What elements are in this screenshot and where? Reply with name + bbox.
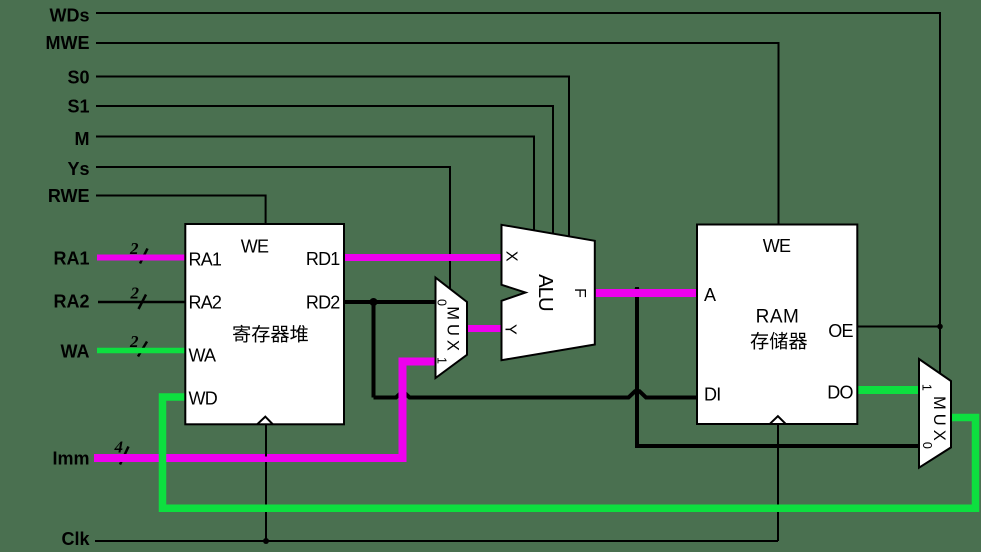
svg-text:1: 1	[920, 384, 934, 391]
svg-text:0: 0	[920, 442, 934, 449]
svg-text:2: 2	[130, 284, 140, 303]
svg-text:WA: WA	[61, 342, 90, 362]
svg-text:S0: S0	[67, 68, 89, 88]
svg-text:X: X	[503, 251, 520, 262]
svg-text:MUX: MUX	[444, 306, 462, 355]
svg-text:DO: DO	[827, 383, 853, 403]
svg-text:RA1: RA1	[189, 250, 222, 270]
svg-text:RWE: RWE	[48, 186, 90, 206]
svg-text:WD: WD	[189, 388, 218, 408]
svg-text:RD1: RD1	[306, 249, 340, 269]
svg-text:M: M	[75, 129, 90, 149]
svg-text:F: F	[571, 288, 588, 298]
svg-text:2: 2	[129, 239, 139, 258]
svg-text:Ys: Ys	[67, 159, 89, 179]
svg-text:S1: S1	[67, 97, 89, 117]
svg-text:RD2: RD2	[306, 292, 340, 312]
svg-text:DI: DI	[704, 385, 720, 405]
svg-text:MWE: MWE	[46, 33, 90, 53]
svg-text:Imm: Imm	[52, 449, 89, 469]
svg-text:A: A	[704, 285, 716, 305]
svg-text:Clk: Clk	[61, 529, 90, 549]
svg-text:RA1: RA1	[53, 249, 89, 269]
svg-text:RA2: RA2	[53, 292, 89, 312]
svg-text:RAM: RAM	[756, 306, 800, 327]
svg-text:WE: WE	[241, 237, 269, 257]
svg-text:ALU: ALU	[534, 274, 557, 311]
svg-text:MUX: MUX	[930, 396, 948, 445]
svg-text:2: 2	[129, 332, 139, 351]
svg-text:4: 4	[114, 438, 124, 457]
svg-text:RA2: RA2	[189, 292, 222, 312]
svg-text:OE: OE	[828, 321, 853, 341]
svg-text:1: 1	[435, 357, 449, 364]
svg-text:0: 0	[435, 299, 449, 306]
svg-text:WE: WE	[763, 236, 791, 256]
svg-text:WDs: WDs	[50, 6, 90, 26]
svg-text:WA: WA	[189, 345, 217, 365]
svg-text:Y: Y	[502, 324, 519, 335]
